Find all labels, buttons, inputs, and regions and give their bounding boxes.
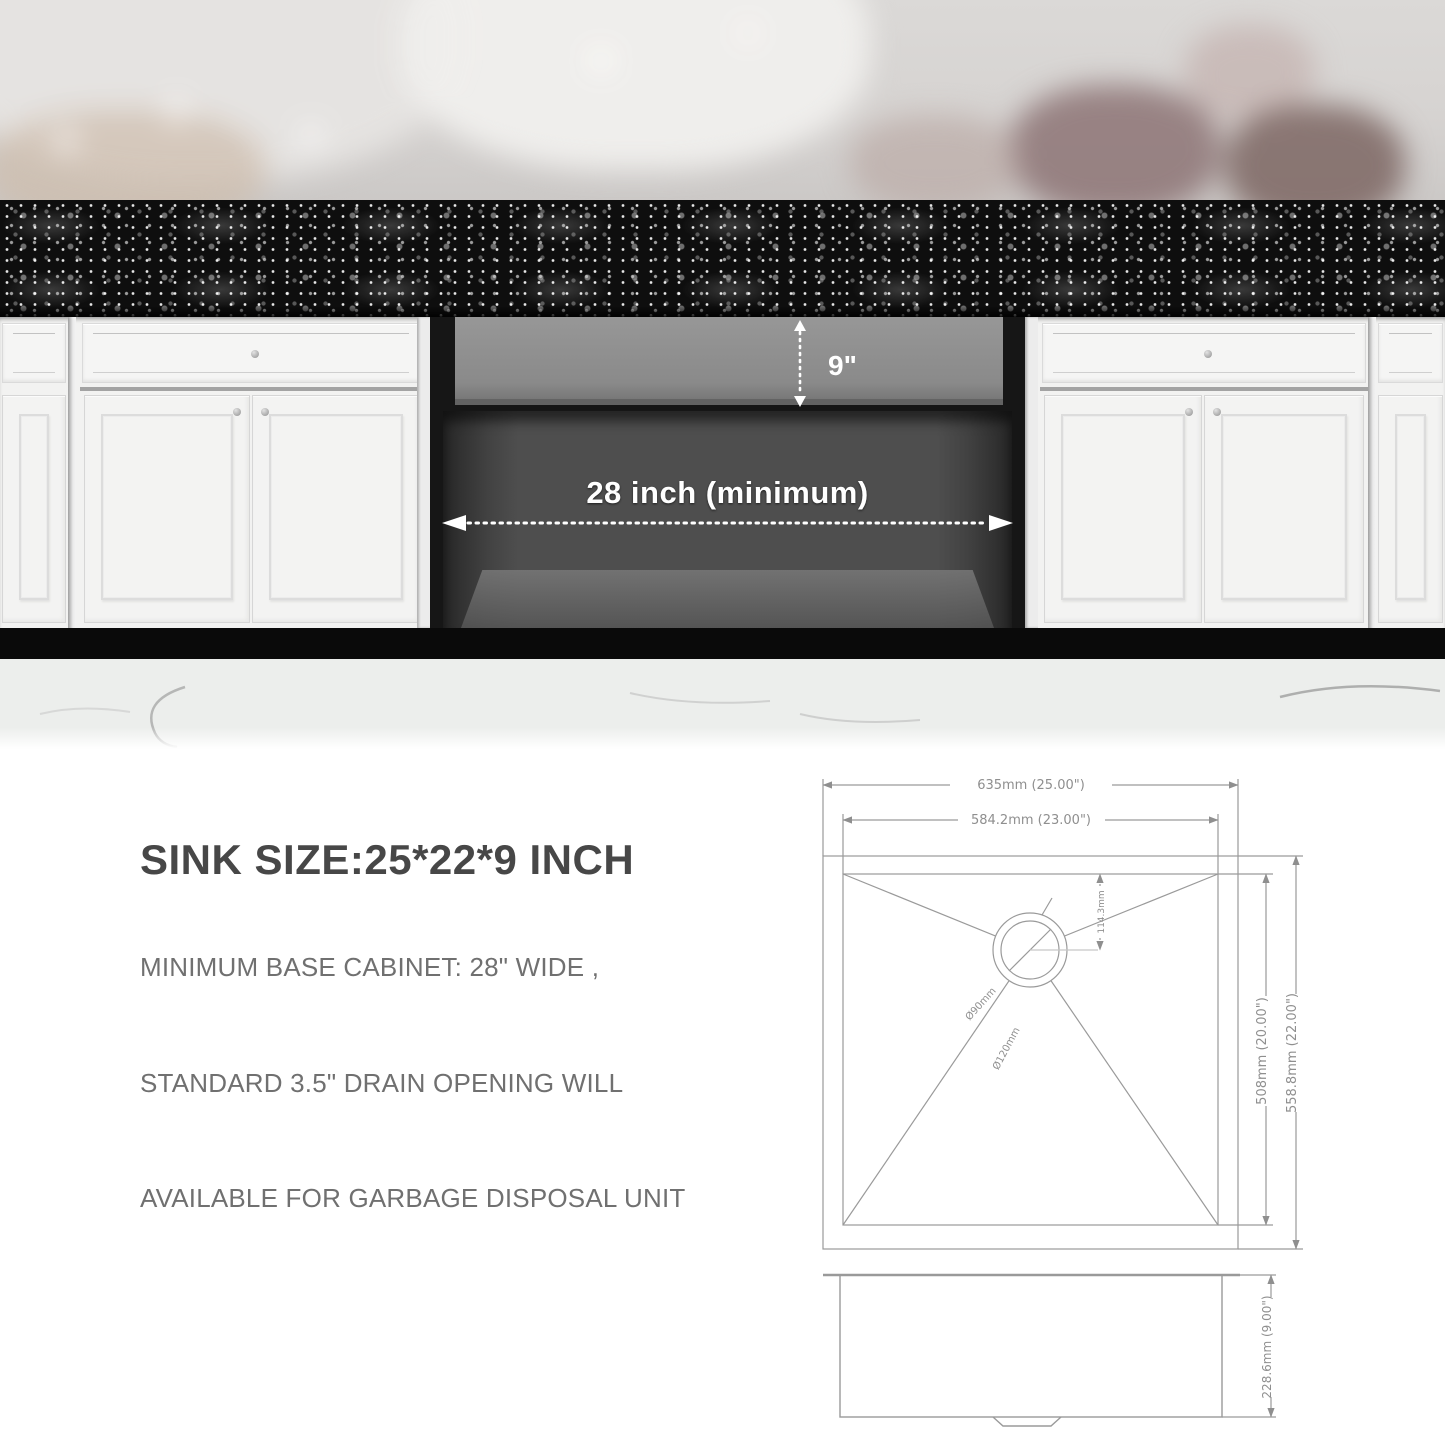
- bokeh-dot: [300, 125, 322, 147]
- cabinet-drawer: [1378, 323, 1443, 383]
- arrowhead-down-icon: [794, 396, 806, 407]
- arrowhead-up-icon: [794, 320, 806, 331]
- cabinet-door: [84, 395, 250, 623]
- door-knob-icon: [1185, 408, 1193, 416]
- marble-floor: [0, 659, 1445, 749]
- sink-size-title: SINK SIZE:25*22*9 INCH: [140, 836, 634, 884]
- cabinet-shelf: [461, 570, 994, 628]
- drawer-knob-icon: [251, 350, 259, 358]
- spec-line-base-cabinet: MINIMUM BASE CABINET: 28" WIDE ,: [140, 952, 599, 983]
- marble-vein: [151, 687, 185, 747]
- cabinet-seam: [68, 317, 76, 628]
- toe-kick: [0, 628, 1445, 659]
- marble-vein: [630, 693, 770, 703]
- dim-bowl-height: 228.6mm (9.00"): [1260, 1295, 1274, 1398]
- dim-drain-outer-diameter: Ø120mm: [990, 1025, 1022, 1072]
- cabinet-door: [1378, 395, 1443, 623]
- cabinet-seam: [1040, 387, 1368, 391]
- cabinet-door: [1204, 395, 1364, 623]
- dim-bowl-depth: 508mm (20.00"): [1255, 997, 1270, 1105]
- dim-overall-width: 635mm (25.00"): [977, 778, 1085, 793]
- door-knob-icon: [1213, 408, 1221, 416]
- bokeh-blob: [850, 115, 1020, 210]
- spec-line-drain-opening: STANDARD 3.5" DRAIN OPENING WILL: [140, 1068, 623, 1099]
- door-knob-icon: [233, 408, 241, 416]
- cabinet-side-panel: [1025, 317, 1038, 628]
- arrowhead-right-icon: [989, 515, 1013, 531]
- cabinet-door: [2, 395, 66, 623]
- cabinet-drawer: [82, 323, 420, 383]
- arrowhead-left-icon: [442, 515, 466, 531]
- bokeh-blob: [400, 0, 870, 170]
- bokeh-dot: [740, 25, 756, 41]
- cabinet-door: [252, 395, 420, 623]
- marble-vein: [1280, 686, 1440, 697]
- bokeh-layer: [0, 0, 1445, 212]
- marble-vein: [40, 708, 130, 714]
- bokeh-blob: [0, 110, 265, 212]
- cabinet-seam: [80, 387, 422, 391]
- cabinet-seam: [1368, 317, 1376, 628]
- bokeh-blob: [1225, 105, 1405, 212]
- cabinet-drawer: [2, 323, 66, 383]
- granite-countertop: 25 inch (minimum): [0, 200, 1445, 318]
- sink-dimension-product-image: 25 inch (minimum): [0, 0, 1445, 1445]
- dim-drain-offset: 114.3mm: [1097, 890, 1107, 933]
- kitchen-background: [0, 0, 1445, 212]
- cabinet-side-panel: [417, 317, 430, 628]
- bokeh-dot: [590, 50, 612, 72]
- dim-bowl-width: 584.2mm (23.00"): [971, 813, 1091, 828]
- spec-line-garbage-disposal: AVAILABLE FOR GARBAGE DISPOSAL UNIT: [140, 1183, 685, 1214]
- sink-cabinet-opening: 9" 28 inch (minimum): [430, 317, 1025, 628]
- cabinet-drawer: [1042, 323, 1366, 383]
- bokeh-blob: [1010, 85, 1220, 212]
- bokeh-dot: [55, 130, 77, 152]
- dim-overall-depth: 558.8mm (22.00"): [1285, 993, 1300, 1113]
- drawer-knob-icon: [1204, 350, 1212, 358]
- sink-body: [455, 317, 1003, 405]
- base-cabinet-width-label: 28 inch (minimum): [430, 475, 1025, 511]
- sink-side-view-drawing: 228.6mm (9.00"): [790, 1255, 1320, 1445]
- sink-top-view-drawing: 635mm (25.00") 584.2mm (23.00") 508mm (2…: [790, 768, 1320, 1268]
- sink-depth-label: 9": [828, 350, 857, 381]
- base-cabinet-width-arrow: [440, 509, 1015, 537]
- cabinet-door: [1044, 395, 1202, 623]
- marble-veins: [0, 659, 1445, 749]
- sink-depth-dimension: 9": [770, 319, 890, 409]
- door-knob-icon: [261, 408, 269, 416]
- marble-vein: [800, 714, 920, 722]
- bokeh-dot: [165, 100, 187, 122]
